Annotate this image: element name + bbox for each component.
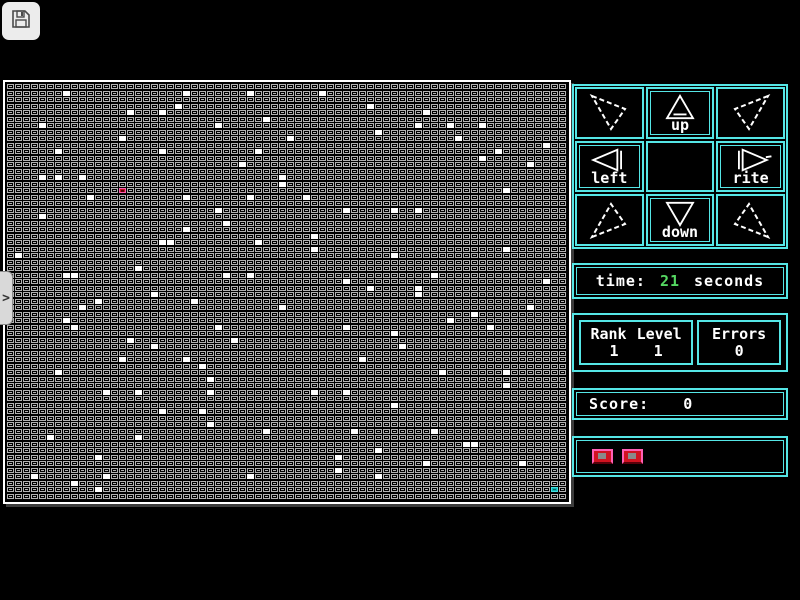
grid-cell[interactable] <box>279 416 286 421</box>
grid-cell[interactable] <box>103 247 110 252</box>
grid-cell[interactable] <box>551 247 558 252</box>
grid-cell[interactable] <box>135 117 142 122</box>
grid-cell[interactable] <box>119 130 126 135</box>
grid-cell[interactable] <box>39 455 46 460</box>
grid-cell[interactable] <box>479 299 486 304</box>
grid-cell[interactable] <box>311 338 318 343</box>
grid-cell[interactable] <box>527 357 534 362</box>
grid-cell[interactable] <box>199 84 206 89</box>
grid-cell[interactable] <box>487 208 494 213</box>
grid-cell[interactable] <box>319 253 326 258</box>
grid-cell[interactable] <box>143 455 150 460</box>
grid-cell[interactable] <box>487 247 494 252</box>
grid-cell[interactable] <box>135 331 142 336</box>
grid-cell[interactable] <box>183 162 190 167</box>
grid-cell[interactable] <box>511 442 518 447</box>
grid-cell[interactable] <box>503 325 510 330</box>
grid-cell[interactable] <box>375 162 382 167</box>
grid-cell[interactable] <box>47 136 54 141</box>
grid-cell[interactable] <box>431 299 438 304</box>
grid-cell[interactable] <box>415 188 422 193</box>
grid-cell[interactable] <box>359 123 366 128</box>
grid-cell[interactable] <box>199 344 206 349</box>
grid-cell[interactable] <box>239 344 246 349</box>
grid-cell[interactable] <box>63 435 70 440</box>
grid-cell[interactable] <box>439 429 446 434</box>
grid-cell[interactable] <box>215 390 222 395</box>
grid-cell[interactable] <box>71 104 78 109</box>
grid-cell[interactable] <box>487 351 494 356</box>
grid-cell[interactable] <box>127 136 134 141</box>
grid-cell[interactable] <box>495 409 502 414</box>
grid-cell[interactable] <box>87 364 94 369</box>
grid-cell[interactable] <box>167 247 174 252</box>
grid-cell[interactable] <box>47 416 54 421</box>
grid-cell[interactable] <box>535 169 542 174</box>
grid-cell[interactable] <box>119 286 126 291</box>
grid-cell[interactable] <box>87 221 94 226</box>
grid-cell[interactable] <box>87 383 94 388</box>
grid-cell[interactable] <box>487 409 494 414</box>
grid-cell[interactable] <box>55 266 62 271</box>
grid-cell[interactable] <box>135 162 142 167</box>
grid-cell[interactable] <box>503 123 510 128</box>
move-up-button[interactable]: up <box>646 87 715 139</box>
grid-cell[interactable] <box>375 97 382 102</box>
grid-cell[interactable] <box>151 383 158 388</box>
grid-cell[interactable] <box>55 442 62 447</box>
grid-cell[interactable] <box>407 156 414 161</box>
grid-cell[interactable] <box>127 331 134 336</box>
grid-cell[interactable] <box>391 292 398 297</box>
grid-cell[interactable] <box>527 422 534 427</box>
grid-cell[interactable] <box>351 208 358 213</box>
grid-cell[interactable] <box>439 344 446 349</box>
grid-cell[interactable] <box>279 377 286 382</box>
grid-cell[interactable] <box>103 396 110 401</box>
grid-cell[interactable] <box>263 286 270 291</box>
grid-cell[interactable] <box>63 175 70 180</box>
grid-cell[interactable] <box>151 409 158 414</box>
grid-cell[interactable] <box>527 364 534 369</box>
grid-cell[interactable] <box>215 305 222 310</box>
grid-cell[interactable] <box>303 292 310 297</box>
grid-cell[interactable] <box>119 221 126 226</box>
grid-cell[interactable] <box>367 104 374 109</box>
grid-cell[interactable] <box>527 195 534 200</box>
grid-cell[interactable] <box>87 377 94 382</box>
grid-cell[interactable] <box>143 494 150 499</box>
grid-cell[interactable] <box>183 474 190 479</box>
grid-cell[interactable] <box>239 221 246 226</box>
grid-cell[interactable] <box>495 117 502 122</box>
grid-cell[interactable] <box>559 364 566 369</box>
grid-cell[interactable] <box>543 403 550 408</box>
grid-cell[interactable] <box>519 377 526 382</box>
grid-cell[interactable] <box>519 338 526 343</box>
grid-cell[interactable] <box>47 221 54 226</box>
grid-cell[interactable] <box>335 299 342 304</box>
grid-cell[interactable] <box>447 175 454 180</box>
grid-cell[interactable] <box>95 364 102 369</box>
grid-cell[interactable] <box>207 162 214 167</box>
grid-cell[interactable] <box>167 299 174 304</box>
grid-cell[interactable] <box>71 481 78 486</box>
grid-cell[interactable] <box>303 442 310 447</box>
grid-cell[interactable] <box>527 260 534 265</box>
grid-cell[interactable] <box>487 468 494 473</box>
grid-cell[interactable] <box>351 123 358 128</box>
grid-cell[interactable] <box>559 357 566 362</box>
grid-cell[interactable] <box>231 221 238 226</box>
grid-cell[interactable] <box>55 318 62 323</box>
grid-cell[interactable] <box>535 351 542 356</box>
grid-cell[interactable] <box>287 240 294 245</box>
grid-cell[interactable] <box>39 442 46 447</box>
grid-cell[interactable] <box>111 403 118 408</box>
grid-cell[interactable] <box>119 364 126 369</box>
grid-cell[interactable] <box>479 195 486 200</box>
grid-cell[interactable] <box>87 149 94 154</box>
grid-cell[interactable] <box>367 247 374 252</box>
grid-cell[interactable] <box>135 91 142 96</box>
grid-cell[interactable] <box>151 266 158 271</box>
grid-cell[interactable] <box>231 409 238 414</box>
grid-cell[interactable] <box>335 481 342 486</box>
grid-cell[interactable] <box>63 260 70 265</box>
grid-cell[interactable] <box>431 487 438 492</box>
grid-cell[interactable] <box>39 195 46 200</box>
grid-cell[interactable] <box>383 162 390 167</box>
grid-cell[interactable] <box>167 156 174 161</box>
grid-cell[interactable] <box>551 494 558 499</box>
grid-cell[interactable] <box>415 195 422 200</box>
grid-cell[interactable] <box>247 481 254 486</box>
grid-cell[interactable] <box>543 312 550 317</box>
grid-cell[interactable] <box>263 344 270 349</box>
grid-cell[interactable] <box>103 214 110 219</box>
grid-cell[interactable] <box>183 331 190 336</box>
grid-cell[interactable] <box>95 416 102 421</box>
grid-cell[interactable] <box>215 364 222 369</box>
grid-cell[interactable] <box>191 409 198 414</box>
grid-cell[interactable] <box>407 494 414 499</box>
grid-cell[interactable] <box>327 442 334 447</box>
grid-cell[interactable] <box>279 474 286 479</box>
grid-cell[interactable] <box>135 455 142 460</box>
grid-cell[interactable] <box>71 474 78 479</box>
grid-cell[interactable] <box>559 247 566 252</box>
grid-cell[interactable] <box>15 396 22 401</box>
grid-cell[interactable] <box>327 357 334 362</box>
grid-cell[interactable] <box>263 234 270 239</box>
grid-cell[interactable] <box>247 117 254 122</box>
grid-cell[interactable] <box>63 208 70 213</box>
grid-cell[interactable] <box>95 487 102 492</box>
grid-cell[interactable] <box>223 357 230 362</box>
grid-cell[interactable] <box>295 383 302 388</box>
grid-cell[interactable] <box>263 279 270 284</box>
grid-cell[interactable] <box>47 312 54 317</box>
grid-cell[interactable] <box>31 357 38 362</box>
grid-cell[interactable] <box>87 266 94 271</box>
grid-cell[interactable] <box>7 370 14 375</box>
grid-cell[interactable] <box>303 351 310 356</box>
grid-cell[interactable] <box>375 396 382 401</box>
move-down-button[interactable]: down <box>646 194 715 246</box>
grid-cell[interactable] <box>487 312 494 317</box>
grid-cell[interactable] <box>167 175 174 180</box>
grid-cell[interactable] <box>383 214 390 219</box>
grid-cell[interactable] <box>127 273 134 278</box>
grid-cell[interactable] <box>71 253 78 258</box>
grid-cell[interactable] <box>39 409 46 414</box>
grid-cell[interactable] <box>223 429 230 434</box>
grid-cell[interactable] <box>207 201 214 206</box>
grid-cell[interactable] <box>359 136 366 141</box>
grid-cell[interactable] <box>95 351 102 356</box>
grid-cell[interactable] <box>207 357 214 362</box>
grid-cell[interactable] <box>159 338 166 343</box>
grid-cell[interactable] <box>47 260 54 265</box>
grid-cell[interactable] <box>63 97 70 102</box>
grid-cell[interactable] <box>447 396 454 401</box>
grid-cell[interactable] <box>199 253 206 258</box>
grid-cell[interactable] <box>71 84 78 89</box>
grid-cell[interactable] <box>167 117 174 122</box>
grid-cell[interactable] <box>263 266 270 271</box>
grid-cell[interactable] <box>127 286 134 291</box>
grid-cell[interactable] <box>215 123 222 128</box>
grid-cell[interactable] <box>303 117 310 122</box>
grid-cell[interactable] <box>239 84 246 89</box>
grid-cell[interactable] <box>295 110 302 115</box>
grid-cell[interactable] <box>159 123 166 128</box>
grid-cell[interactable] <box>343 468 350 473</box>
grid-cell[interactable] <box>263 136 270 141</box>
grid-cell[interactable] <box>143 279 150 284</box>
grid-cell[interactable] <box>199 429 206 434</box>
grid-cell[interactable] <box>207 279 214 284</box>
grid-cell[interactable] <box>551 455 558 460</box>
grid-cell[interactable] <box>55 338 62 343</box>
grid-cell[interactable] <box>111 370 118 375</box>
grid-cell[interactable] <box>431 227 438 232</box>
grid-cell[interactable] <box>463 448 470 453</box>
grid-cell[interactable] <box>351 422 358 427</box>
grid-cell[interactable] <box>327 162 334 167</box>
grid-cell[interactable] <box>55 286 62 291</box>
grid-cell[interactable] <box>535 403 542 408</box>
grid-cell[interactable] <box>7 377 14 382</box>
grid-cell[interactable] <box>71 299 78 304</box>
grid-cell[interactable] <box>327 286 334 291</box>
grid-cell[interactable] <box>463 123 470 128</box>
grid-cell[interactable] <box>159 195 166 200</box>
grid-cell[interactable] <box>551 279 558 284</box>
grid-cell[interactable] <box>199 266 206 271</box>
grid-cell[interactable] <box>359 130 366 135</box>
grid-cell[interactable] <box>431 357 438 362</box>
grid-cell[interactable] <box>231 156 238 161</box>
grid-cell[interactable] <box>367 169 374 174</box>
grid-cell[interactable] <box>351 416 358 421</box>
grid-cell[interactable] <box>87 325 94 330</box>
grid-cell[interactable] <box>447 403 454 408</box>
grid-cell[interactable] <box>207 273 214 278</box>
grid-cell[interactable] <box>191 123 198 128</box>
grid-cell[interactable] <box>263 396 270 401</box>
grid-cell[interactable] <box>487 201 494 206</box>
grid-cell[interactable] <box>303 409 310 414</box>
grid-cell[interactable] <box>343 234 350 239</box>
grid-cell[interactable] <box>423 162 430 167</box>
grid-cell[interactable] <box>407 162 414 167</box>
grid-cell[interactable] <box>527 396 534 401</box>
grid-cell[interactable] <box>239 403 246 408</box>
grid-cell[interactable] <box>231 143 238 148</box>
grid-cell[interactable] <box>167 370 174 375</box>
grid-cell[interactable] <box>511 117 518 122</box>
grid-cell[interactable] <box>103 344 110 349</box>
grid-cell[interactable] <box>447 143 454 148</box>
grid-cell[interactable] <box>263 169 270 174</box>
grid-cell[interactable] <box>351 240 358 245</box>
grid-cell[interactable] <box>31 351 38 356</box>
grid-cell[interactable] <box>135 357 142 362</box>
grid-cell[interactable] <box>551 403 558 408</box>
grid-cell[interactable] <box>543 260 550 265</box>
grid-cell[interactable] <box>303 286 310 291</box>
grid-cell[interactable] <box>519 253 526 258</box>
grid-cell[interactable] <box>39 338 46 343</box>
grid-cell[interactable] <box>303 312 310 317</box>
grid-cell[interactable] <box>55 130 62 135</box>
grid-cell[interactable] <box>375 169 382 174</box>
grid-cell[interactable] <box>287 260 294 265</box>
grid-cell[interactable] <box>71 286 78 291</box>
grid-cell[interactable] <box>383 299 390 304</box>
grid-cell[interactable] <box>63 448 70 453</box>
grid-cell[interactable] <box>519 461 526 466</box>
grid-cell[interactable] <box>39 221 46 226</box>
grid-cell[interactable] <box>143 227 150 232</box>
grid-cell[interactable] <box>479 156 486 161</box>
grid-cell[interactable] <box>511 260 518 265</box>
grid-cell[interactable] <box>535 481 542 486</box>
grid-cell[interactable] <box>295 221 302 226</box>
grid-cell[interactable] <box>199 195 206 200</box>
grid-cell[interactable] <box>295 234 302 239</box>
grid-cell[interactable] <box>55 104 62 109</box>
grid-cell[interactable] <box>271 351 278 356</box>
grid-cell[interactable] <box>319 305 326 310</box>
grid-cell[interactable] <box>559 123 566 128</box>
grid-cell[interactable] <box>247 227 254 232</box>
grid-cell[interactable] <box>399 312 406 317</box>
grid-cell[interactable] <box>135 370 142 375</box>
grid-cell[interactable] <box>423 370 430 375</box>
grid-cell[interactable] <box>255 234 262 239</box>
grid-cell[interactable] <box>247 318 254 323</box>
grid-cell[interactable] <box>455 143 462 148</box>
grid-cell[interactable] <box>239 318 246 323</box>
grid-cell[interactable] <box>495 227 502 232</box>
grid-cell[interactable] <box>167 104 174 109</box>
grid-cell[interactable] <box>495 208 502 213</box>
grid-cell[interactable] <box>343 487 350 492</box>
grid-cell[interactable] <box>527 455 534 460</box>
grid-cell[interactable] <box>335 292 342 297</box>
grid-cell[interactable] <box>455 338 462 343</box>
grid-cell[interactable] <box>519 221 526 226</box>
grid-cell[interactable] <box>415 221 422 226</box>
grid-cell[interactable] <box>87 305 94 310</box>
grid-cell[interactable] <box>359 91 366 96</box>
grid-cell[interactable] <box>183 390 190 395</box>
grid-cell[interactable] <box>519 84 526 89</box>
grid-cell[interactable] <box>223 455 230 460</box>
grid-cell[interactable] <box>87 240 94 245</box>
grid-cell[interactable] <box>551 338 558 343</box>
grid-cell[interactable] <box>55 305 62 310</box>
grid-cell[interactable] <box>87 136 94 141</box>
grid-cell[interactable] <box>391 84 398 89</box>
grid-cell[interactable] <box>455 383 462 388</box>
grid-cell[interactable] <box>151 338 158 343</box>
grid-cell[interactable] <box>79 188 86 193</box>
grid-cell[interactable] <box>519 442 526 447</box>
grid-cell[interactable] <box>247 247 254 252</box>
grid-cell[interactable] <box>103 279 110 284</box>
grid-cell[interactable] <box>319 130 326 135</box>
grid-cell[interactable] <box>143 266 150 271</box>
grid-cell[interactable] <box>303 299 310 304</box>
grid-cell[interactable] <box>487 435 494 440</box>
grid-cell[interactable] <box>311 383 318 388</box>
grid-cell[interactable] <box>343 325 350 330</box>
grid-cell[interactable] <box>175 481 182 486</box>
grid-cell[interactable] <box>519 149 526 154</box>
grid-cell[interactable] <box>47 175 54 180</box>
grid-cell[interactable] <box>391 195 398 200</box>
grid-cell[interactable] <box>191 403 198 408</box>
grid-cell[interactable] <box>319 429 326 434</box>
grid-cell[interactable] <box>23 136 30 141</box>
grid-cell[interactable] <box>455 390 462 395</box>
grid-cell[interactable] <box>359 221 366 226</box>
grid-cell[interactable] <box>439 279 446 284</box>
grid-cell[interactable] <box>447 136 454 141</box>
grid-cell[interactable] <box>447 370 454 375</box>
grid-cell[interactable] <box>31 481 38 486</box>
grid-cell[interactable] <box>63 422 70 427</box>
grid-cell[interactable] <box>295 338 302 343</box>
grid-cell[interactable] <box>527 266 534 271</box>
grid-cell[interactable] <box>295 318 302 323</box>
grid-cell[interactable] <box>199 409 206 414</box>
grid-cell[interactable] <box>15 377 22 382</box>
grid-cell[interactable] <box>311 448 318 453</box>
grid-cell[interactable] <box>15 221 22 226</box>
grid-cell[interactable] <box>375 474 382 479</box>
grid-cell[interactable] <box>79 344 86 349</box>
grid-cell[interactable] <box>487 260 494 265</box>
grid-cell[interactable] <box>207 390 214 395</box>
grid-cell[interactable] <box>7 117 14 122</box>
grid-cell[interactable] <box>127 357 134 362</box>
grid-cell[interactable] <box>527 201 534 206</box>
